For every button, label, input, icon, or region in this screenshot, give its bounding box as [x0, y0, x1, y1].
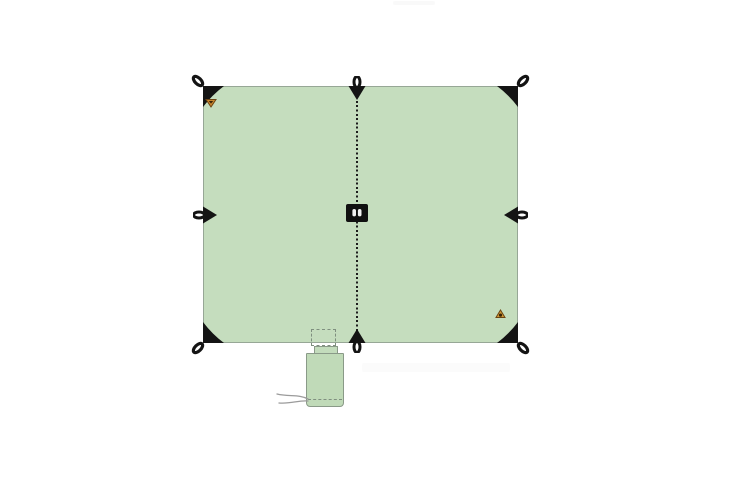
triangle-logo-bottom-right: [495, 309, 506, 319]
corner-loop-bottom-left: [191, 321, 225, 355]
background-smudge-top: [393, 1, 435, 5]
background-smudge-bottom: [362, 363, 510, 372]
corner-loop-bottom-right: [496, 321, 530, 355]
edge-loop-bottom-center: [346, 327, 368, 353]
stuff-sack-drawcord: [272, 390, 310, 408]
stuff-sack-bottom-stitch: [308, 399, 342, 400]
corner-loop-top-right: [496, 74, 530, 108]
edge-loop-left-center: [193, 204, 219, 226]
edge-loop-top-center: [346, 76, 368, 102]
sack-placement-outline: [311, 329, 336, 346]
brand-label-patch: [346, 204, 368, 222]
triangle-logo-top-left: [205, 98, 217, 108]
edge-loop-right-center: [502, 204, 528, 226]
